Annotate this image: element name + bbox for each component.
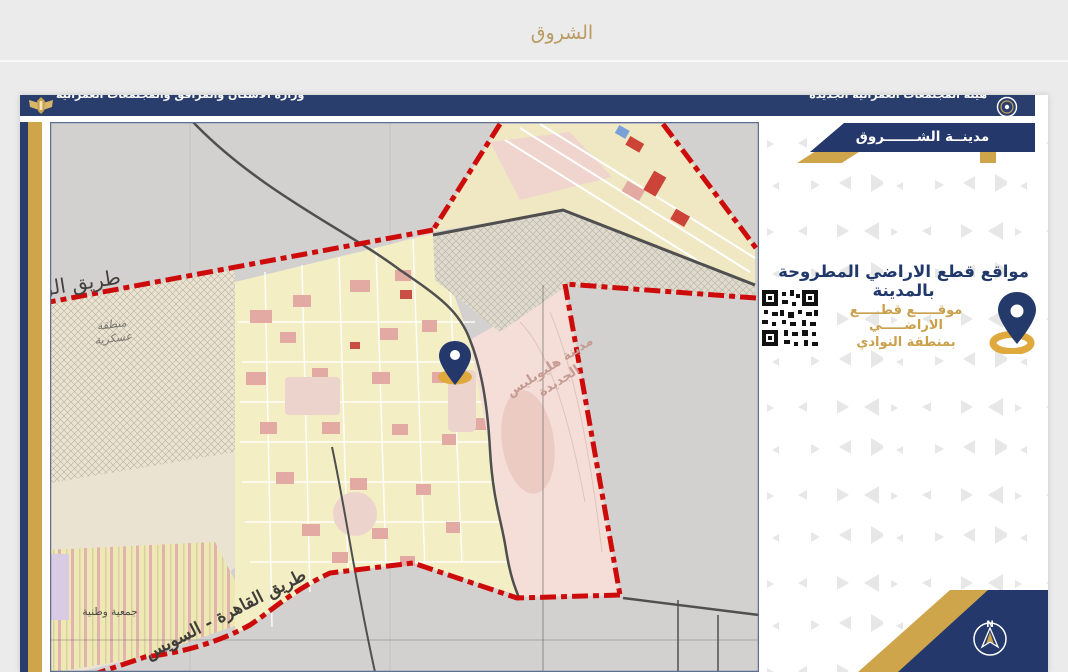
location-pin-icon bbox=[988, 290, 1042, 354]
plot-location-line1: موقـــــع قطـــــع الاراضـــــي bbox=[825, 303, 987, 333]
map-document[interactable]: وزارة الاسكان والمرافق والمجتمعات العمرا… bbox=[20, 95, 1048, 672]
military-hatch bbox=[50, 269, 235, 484]
page-title: الشروق bbox=[28, 22, 1068, 44]
qr-code-icon bbox=[760, 288, 820, 348]
ministry-header-bar: وزارة الاسكان والمرافق والمجتمعات العمرا… bbox=[20, 95, 1035, 116]
plots-lavender-block bbox=[50, 554, 69, 620]
map-pin-icon bbox=[438, 341, 472, 385]
authority-title: هيئة المجتمعات العمرانية الجديدة bbox=[809, 95, 987, 101]
city-map[interactable]: طريق الق منطقة عسكرية مدينة هليوبليس الج… bbox=[50, 122, 759, 672]
label-association: جمعية وطنية bbox=[82, 606, 137, 618]
header-divider bbox=[0, 60, 1068, 62]
plot-location-text: موقـــــع قطـــــع الاراضـــــي بمنطقة ا… bbox=[825, 303, 987, 350]
edge-stripe-gold bbox=[28, 122, 42, 672]
authority-logo-icon bbox=[996, 96, 1018, 116]
city-banner: مدينــة الشـــــــروق bbox=[810, 123, 1035, 152]
edge-stripe-blue bbox=[20, 122, 28, 672]
corner-decoration: N bbox=[858, 587, 1048, 672]
ministry-title: وزارة الاسكان والمرافق والمجتمعات العمرا… bbox=[56, 95, 304, 101]
info-sidebar: مدينــة الشـــــــروق مواقع قطع الاراضي … bbox=[759, 122, 1048, 672]
egypt-eagle-icon bbox=[28, 96, 54, 115]
plot-location-line2: بمنطقة النوادي bbox=[825, 335, 987, 350]
